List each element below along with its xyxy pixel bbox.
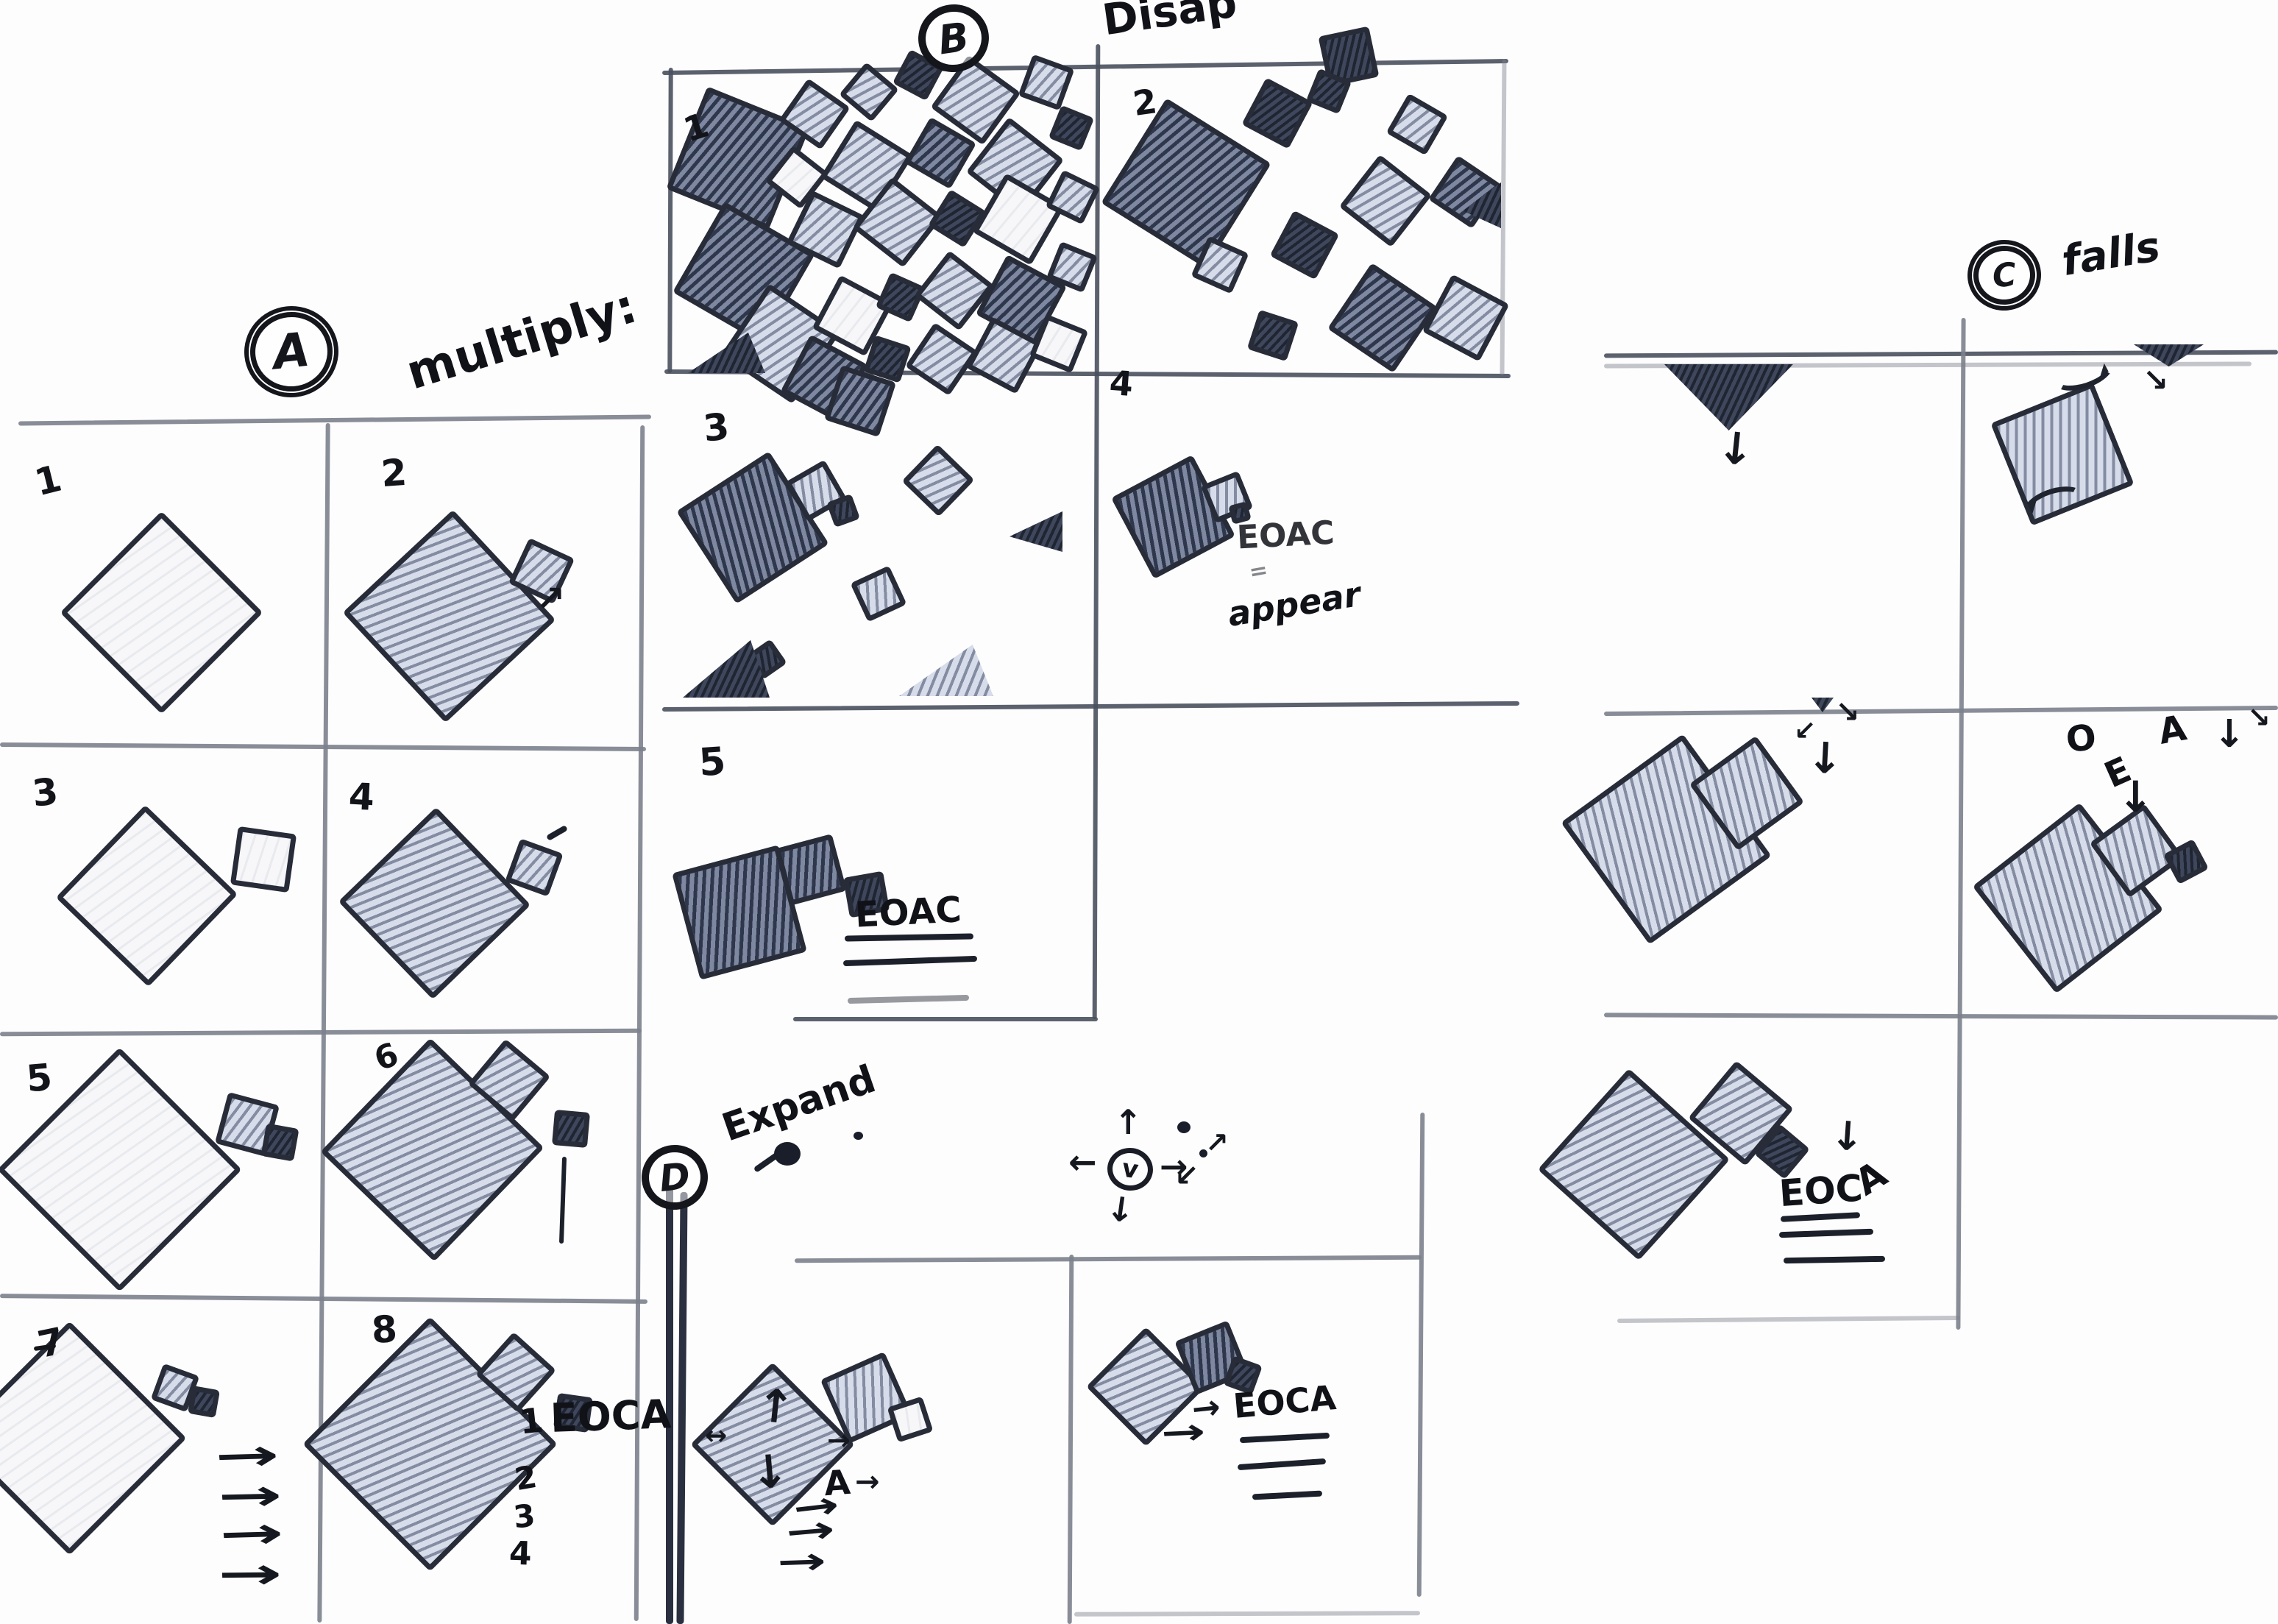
panel-b5-eoac-note: EOAC	[854, 892, 962, 933]
arrow-right-icon: →	[827, 1426, 851, 1454]
arrow-down-right-icon: ↘	[1835, 698, 1860, 727]
arrow-left-icon: ←	[1068, 1145, 1097, 1179]
sketch-square	[1327, 263, 1438, 373]
sketch-square	[1386, 93, 1449, 156]
sketch-line	[1956, 318, 1965, 1330]
panel-a8-list-item-1: 1	[518, 1403, 545, 1439]
circled-v-glyph: v	[1104, 1145, 1155, 1194]
sketch-square	[1422, 274, 1509, 361]
storyboard-canvas: A multiply: 1 2 3 4 5 6 7 8 ↗ → → → → 1 …	[0, 0, 2278, 1624]
section-a-title: multiply:	[402, 283, 642, 397]
sketch-line	[1240, 1433, 1330, 1443]
panel-a1-number: 1	[31, 460, 65, 502]
section-a-badge-letter: A	[271, 323, 313, 381]
sketch-line	[793, 1017, 1098, 1021]
sketch-line	[848, 995, 969, 1004]
sketch-line	[546, 825, 568, 841]
sketch-diamond	[902, 444, 975, 517]
sketch-square	[1247, 310, 1299, 362]
sketch-square	[1339, 155, 1432, 247]
circled-v-letter: v	[1120, 1154, 1140, 1185]
arrow-right-icon: →	[855, 1467, 880, 1497]
panel-b4-eoac-note: EOAC	[1236, 517, 1335, 555]
sketch-line	[1779, 1229, 1873, 1238]
panel-a4-number: 4	[348, 778, 375, 816]
panel-a8-eoca-label: EOCA	[550, 1394, 672, 1439]
panel-a5-number: 5	[25, 1059, 54, 1098]
sketch-line	[795, 1255, 1422, 1263]
sketch-line	[1417, 1113, 1425, 1597]
sketch-diamond	[56, 805, 238, 987]
spark-dot	[854, 1132, 863, 1140]
sketch-square	[260, 1123, 299, 1161]
sketch-line	[1784, 1256, 1885, 1263]
sketch-line	[18, 414, 651, 425]
sketch-square	[850, 565, 906, 622]
arrow-up-icon: ↑	[1114, 1105, 1143, 1139]
panel-a6-number: 6	[370, 1038, 402, 1077]
sketch-diamond	[0, 1321, 187, 1555]
arrow-down-icon: ↓	[748, 1448, 790, 1497]
sketch-diamond	[338, 807, 531, 1000]
arrow-down-icon: ↓	[1715, 425, 1756, 473]
section-c-badge: C	[1971, 243, 2038, 307]
sketch-square	[905, 322, 979, 396]
sketch-triangle	[1010, 511, 1062, 552]
sketch-line	[1074, 1611, 1420, 1617]
panel-b4-equals-mark: =	[1248, 559, 1270, 584]
arrow-right-icon: →	[1159, 1414, 1207, 1451]
sketch-square	[552, 1110, 590, 1148]
section-c-title: falls	[2059, 227, 2162, 283]
panel-c3-eoca-note: EOCA	[1778, 1168, 1892, 1212]
arrow-down-right-icon: ↘	[2143, 365, 2168, 396]
panel-a8-list-item-4: 4	[508, 1537, 532, 1570]
panel-a3-number: 3	[30, 773, 60, 812]
arrow-up-icon: ↑	[754, 1382, 797, 1431]
falling-letter-o: O	[2065, 720, 2098, 758]
panel-b4-number: 4	[1108, 366, 1134, 401]
sketch-square	[928, 189, 987, 248]
sketch-line	[662, 701, 1519, 712]
sketch-triangle	[1664, 364, 1793, 430]
arrow-down-icon: ↓	[1806, 736, 1844, 780]
sketch-line	[676, 1192, 687, 1624]
arrow-right-icon: →	[776, 1542, 828, 1581]
arrow-down-right-icon: ↘	[2247, 703, 2271, 731]
arrow-down-left-icon: ↙	[1174, 1161, 1199, 1191]
sketch-square	[1018, 54, 1075, 111]
arrow-down-icon: ↓	[1104, 1191, 1138, 1228]
panel-b5-number: 5	[698, 742, 727, 782]
sketch-line	[1238, 1458, 1326, 1470]
arrow-right-icon: →	[217, 1552, 283, 1595]
sketch-diamond	[343, 510, 556, 723]
section-d-badge: D	[639, 1142, 712, 1213]
sketch-square	[914, 250, 994, 330]
arrow-left-right-icon: ↔	[705, 1423, 727, 1450]
spark-dot	[1199, 1149, 1207, 1157]
sketch-line	[667, 68, 673, 373]
sketch-square	[230, 826, 297, 893]
ink-blob	[774, 1142, 801, 1166]
sketch-diamond	[1538, 1068, 1730, 1260]
section-d-badge-letter: D	[657, 1155, 692, 1200]
sketch-square	[1270, 210, 1340, 280]
panel-a8-number: 8	[371, 1311, 398, 1349]
sketch-line	[1252, 1491, 1322, 1500]
sketch-triangle	[899, 645, 993, 696]
arrow-down-icon: ↓	[2118, 776, 2154, 818]
sketch-square	[1048, 105, 1094, 151]
spark-dot	[1177, 1121, 1191, 1133]
panel-b3-number: 3	[701, 408, 731, 447]
panel-d2-eoca-note: EOCA	[1232, 1380, 1337, 1423]
panel-a2-number: 2	[380, 454, 408, 492]
sketch-line	[1604, 1013, 2278, 1019]
arrow-down-icon: ↓	[1829, 1116, 1865, 1157]
arrow-up-right-icon: ↗	[1205, 1129, 1229, 1157]
section-b-title: Disap	[1100, 0, 1240, 41]
sketch-line	[1068, 1255, 1074, 1624]
sketch-line	[559, 1157, 567, 1244]
sketch-line	[1617, 1316, 1960, 1323]
section-a-badge: A	[246, 308, 337, 395]
sketch-line	[634, 425, 645, 1621]
sketch-line	[843, 956, 977, 966]
panel-b4-appear-note: appear	[1226, 577, 1363, 631]
falling-letter-a: A	[2156, 710, 2189, 750]
sketch-square	[1241, 77, 1313, 149]
sketch-line	[662, 59, 1508, 75]
section-c-badge-letter: C	[1991, 255, 2018, 295]
sketch-square	[188, 1386, 220, 1418]
section-b-badge-letter: B	[935, 13, 972, 63]
panel-a8-list-item-3: 3	[512, 1500, 536, 1533]
sketch-diamond	[60, 511, 263, 715]
panel-b2-number: 2	[1131, 84, 1159, 121]
arrow-up-right-icon: ↗	[536, 581, 565, 617]
arrow-down-icon: ↓	[2213, 715, 2246, 754]
